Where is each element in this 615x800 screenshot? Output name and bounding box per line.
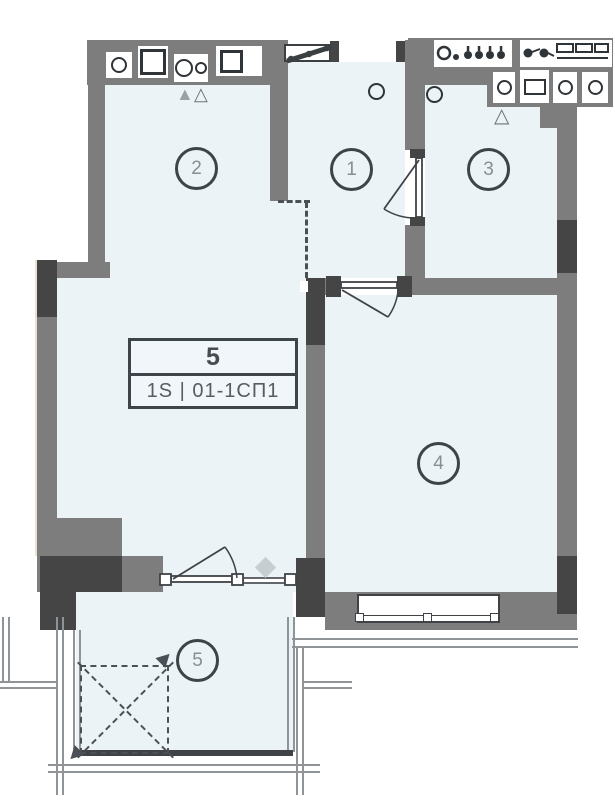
electrical-panel-icon bbox=[434, 40, 512, 67]
vent-triangle-room3-icon: △ bbox=[494, 107, 509, 125]
riser-shaft-fixture-3 bbox=[582, 72, 608, 103]
door-hall-room4 bbox=[325, 274, 415, 324]
wall-dark-bottom-left-corner bbox=[40, 556, 122, 592]
wall-room2-left bbox=[88, 85, 105, 263]
pipe-ring-hall-icon bbox=[368, 83, 385, 100]
room-marker-5: 5 bbox=[176, 639, 219, 682]
wall-right-main bbox=[557, 107, 577, 592]
unit-number: 5 bbox=[131, 341, 295, 376]
room-marker-label: 3 bbox=[483, 159, 494, 181]
double-sink-fixture bbox=[174, 54, 208, 82]
sink-bowl-large-icon bbox=[175, 59, 193, 77]
stove-icon bbox=[140, 49, 166, 75]
vent-triangle-filled-icon: ▲ bbox=[176, 85, 194, 103]
pipe-ring-room3-icon bbox=[426, 86, 443, 103]
appliance-icon bbox=[220, 50, 243, 73]
balcony-glazing-right-inner bbox=[287, 617, 289, 752]
wall-notch-marker bbox=[300, 281, 308, 292]
room-marker-label: 5 bbox=[192, 650, 203, 672]
wall-dark-hall-room4-top bbox=[306, 278, 325, 345]
vent-triangle-outline-icon: △ bbox=[194, 85, 208, 103]
neighbor-line-right-v2 bbox=[302, 647, 304, 795]
pipe-riser-fixture bbox=[520, 40, 612, 67]
washing-machine-fixture bbox=[520, 70, 549, 103]
counter-appliance-fixture bbox=[216, 46, 262, 76]
wall-dark-right-bottom-corner bbox=[557, 556, 577, 614]
riser-shaft-fixture-2 bbox=[553, 72, 577, 103]
sink-small-fixture bbox=[106, 52, 132, 78]
floor-plan: ▲ △ bbox=[0, 0, 615, 800]
dashed-boundary-vertical bbox=[305, 202, 308, 278]
neighbor-line-left-edge-2 bbox=[8, 617, 10, 683]
neighbor-line-left-h2 bbox=[0, 687, 57, 689]
sink-bowl-icon bbox=[111, 57, 127, 73]
wall-dark-main-bottom-right bbox=[296, 558, 325, 617]
riser-pipe-icon bbox=[558, 80, 573, 95]
riser-shaft-fixture-1 bbox=[493, 72, 515, 103]
neighbor-line-left-v2 bbox=[62, 617, 64, 795]
balcony-outer-line-2 bbox=[48, 771, 320, 773]
wall-dark-right-segment bbox=[557, 220, 577, 273]
room-marker-1: 1 bbox=[330, 148, 373, 191]
neighbor-line-left-v1 bbox=[56, 617, 58, 795]
neighbor-line-right-h1 bbox=[302, 681, 352, 683]
window-mullion-right bbox=[490, 613, 499, 622]
room-marker-label: 1 bbox=[346, 159, 357, 181]
entrance-door-icon bbox=[282, 36, 408, 66]
room-marker-3: 3 bbox=[467, 148, 510, 191]
neighbor-line-left-edge-1 bbox=[2, 617, 4, 683]
neighbor-line-right-v1 bbox=[296, 647, 298, 795]
entrance-door bbox=[282, 36, 408, 66]
unit-badge: 5 1S | 01-1СП1 bbox=[128, 338, 298, 409]
room-marker-2: 2 bbox=[175, 147, 218, 190]
pipe-riser-icon bbox=[520, 40, 612, 67]
balcony-glazing-left-outer bbox=[73, 630, 75, 752]
balcony-outer-line-1 bbox=[48, 764, 320, 766]
electrical-panel-fixture bbox=[434, 40, 512, 67]
wall-outer-face-line bbox=[35, 260, 37, 556]
room-marker-label: 4 bbox=[433, 453, 444, 475]
neighbor-line-right-h2 bbox=[302, 687, 352, 689]
slab-line-1 bbox=[292, 638, 578, 640]
slab-line-2 bbox=[292, 646, 578, 648]
door-swing-icon bbox=[325, 274, 415, 324]
door-room1-room3 bbox=[375, 148, 430, 228]
wall-dark-left-segment bbox=[37, 260, 57, 317]
room-marker-label: 2 bbox=[191, 158, 202, 180]
wall-room1-room3-lower bbox=[405, 225, 425, 278]
riser-pipe-icon bbox=[588, 80, 603, 95]
balcony-door-icon bbox=[158, 538, 300, 590]
sink-bowl-small-icon bbox=[195, 62, 207, 74]
window-mullion-center bbox=[423, 613, 432, 622]
washing-machine-icon bbox=[524, 79, 546, 95]
wall-room3-notch bbox=[540, 107, 557, 128]
wall-left-step bbox=[57, 262, 110, 278]
door-swing-icon bbox=[375, 148, 430, 228]
wall-dark-balcony-left bbox=[40, 592, 76, 630]
window-mullion-left bbox=[355, 613, 364, 622]
unit-code: 1S | 01-1СП1 bbox=[131, 376, 295, 406]
riser-pipe-icon bbox=[497, 80, 512, 95]
door-balcony bbox=[158, 538, 300, 590]
wall-left-jog bbox=[37, 518, 122, 558]
stove-fixture bbox=[138, 46, 168, 78]
wall-hall-room4 bbox=[306, 345, 325, 558]
room-marker-4: 4 bbox=[417, 442, 460, 485]
